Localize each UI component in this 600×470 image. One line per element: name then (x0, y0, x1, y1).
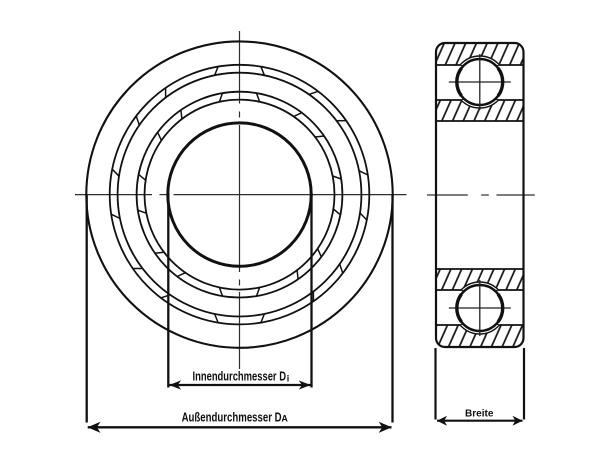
svg-text:Innendurchmesser D: Innendurchmesser D (193, 369, 287, 384)
svg-text:Breite: Breite (465, 409, 494, 420)
svg-text:Außendurchmesser D: Außendurchmesser D (182, 409, 282, 424)
svg-text:A: A (281, 413, 288, 423)
svg-text:i: i (287, 374, 290, 384)
